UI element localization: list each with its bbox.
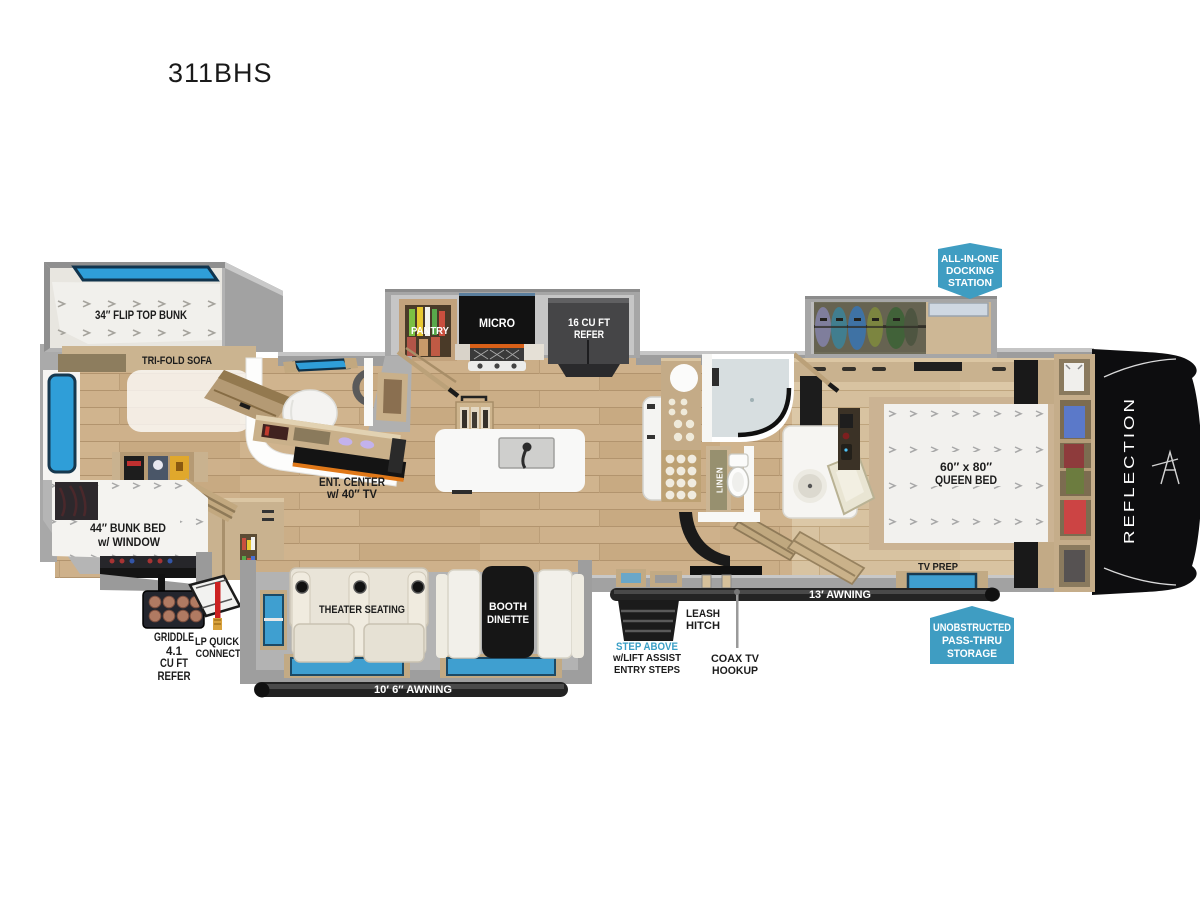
- svg-text:COAX TV: COAX TV: [711, 653, 760, 665]
- svg-text:QUEEN BED: QUEEN BED: [935, 473, 997, 487]
- svg-text:CU FT: CU FT: [160, 658, 188, 670]
- svg-text:STATION: STATION: [948, 277, 992, 289]
- svg-text:REFER: REFER: [574, 329, 604, 341]
- svg-text:DOCKING: DOCKING: [946, 265, 994, 277]
- svg-text:34″ FLIP TOP BUNK: 34″ FLIP TOP BUNK: [95, 310, 188, 322]
- svg-text:LINEN: LINEN: [716, 467, 725, 493]
- svg-text:MICRO: MICRO: [479, 318, 515, 330]
- svg-text:REFER: REFER: [158, 671, 192, 683]
- svg-text:HITCH: HITCH: [686, 620, 720, 632]
- svg-text:THEATER SEATING: THEATER SEATING: [319, 604, 405, 616]
- svg-text:ENT. CENTER: ENT. CENTER: [319, 477, 386, 489]
- svg-text:TRI-FOLD SOFA: TRI-FOLD SOFA: [142, 355, 212, 367]
- svg-text:w/ WINDOW: w/ WINDOW: [97, 537, 160, 549]
- svg-text:REFLECTION: REFLECTION: [1121, 396, 1138, 544]
- svg-text:60″ x 80″: 60″ x 80″: [940, 460, 992, 474]
- svg-text:PANTRY: PANTRY: [411, 326, 449, 337]
- svg-text:GRIDDLE: GRIDDLE: [154, 632, 194, 644]
- svg-text:LEASH: LEASH: [686, 608, 720, 620]
- svg-text:ALL-IN-ONE: ALL-IN-ONE: [941, 253, 999, 265]
- svg-text:STORAGE: STORAGE: [947, 648, 997, 660]
- svg-text:4.1: 4.1: [166, 646, 183, 658]
- svg-text:CONNECT: CONNECT: [196, 648, 241, 660]
- svg-text:ENTRY STEPS: ENTRY STEPS: [614, 664, 680, 676]
- svg-text:10′ 6″ AWNING: 10′ 6″ AWNING: [374, 684, 452, 696]
- svg-text:16 CU FT: 16 CU FT: [568, 317, 610, 329]
- svg-text:LP QUICK: LP QUICK: [195, 636, 239, 648]
- svg-text:13′ AWNING: 13′ AWNING: [809, 589, 871, 601]
- svg-text:w/ 40″ TV: w/ 40″ TV: [326, 489, 377, 501]
- svg-text:44″ BUNK BED: 44″ BUNK BED: [90, 523, 166, 535]
- svg-text:UNOBSTRUCTED: UNOBSTRUCTED: [933, 622, 1011, 634]
- svg-text:w/LIFT ASSIST: w/LIFT ASSIST: [612, 652, 681, 664]
- svg-text:BOOTH: BOOTH: [489, 601, 527, 613]
- svg-text:HOOKUP: HOOKUP: [712, 665, 758, 677]
- svg-text:DINETTE: DINETTE: [487, 614, 529, 626]
- svg-text:PASS-THRU: PASS-THRU: [942, 635, 1002, 647]
- svg-text:311BHS: 311BHS: [168, 58, 273, 88]
